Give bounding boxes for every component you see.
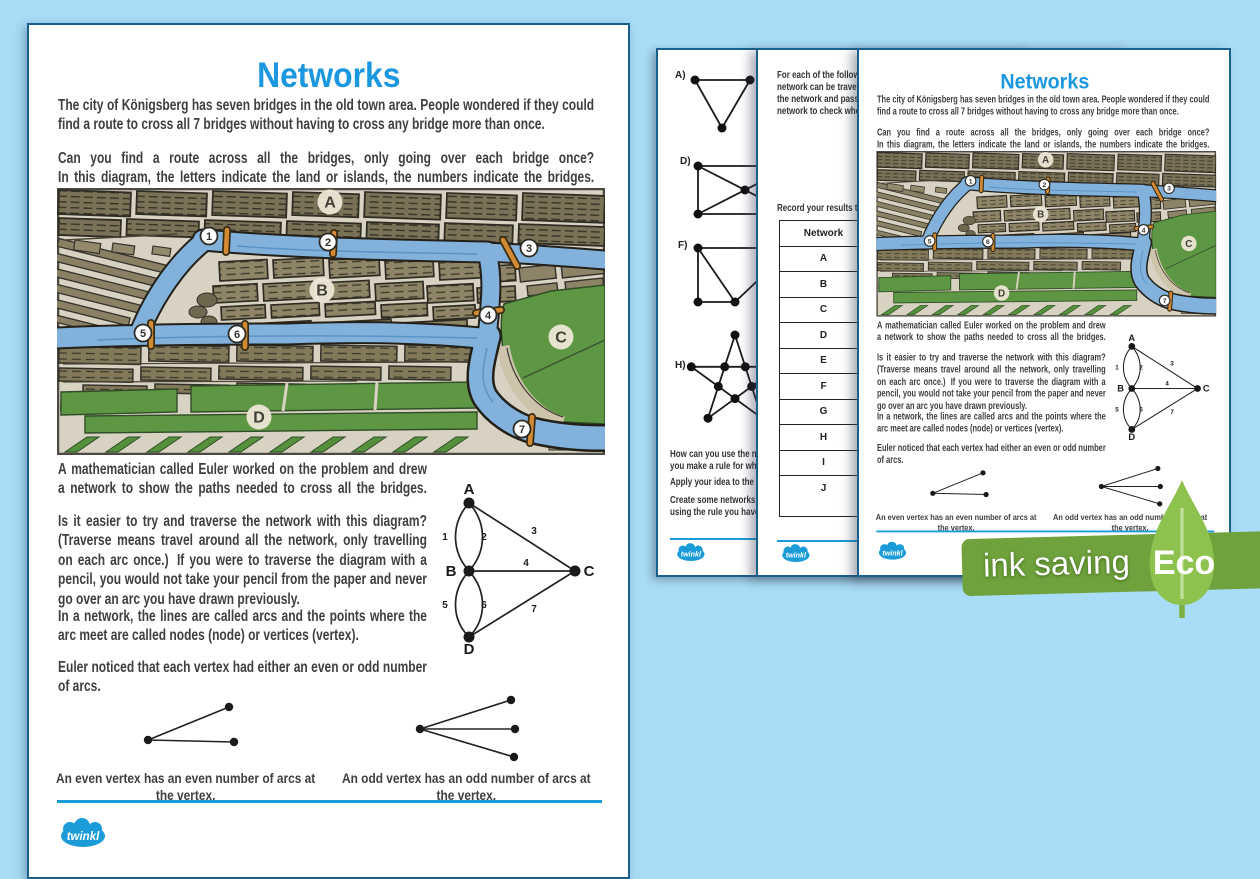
svg-text:B: B bbox=[1037, 210, 1044, 221]
svg-text:2: 2 bbox=[1042, 182, 1046, 189]
svg-text:B: B bbox=[1117, 384, 1124, 394]
svg-text:5: 5 bbox=[140, 328, 146, 340]
svg-text:B: B bbox=[446, 563, 457, 580]
svg-text:4: 4 bbox=[1142, 227, 1146, 234]
svg-text:C: C bbox=[584, 563, 595, 580]
svg-text:B: B bbox=[316, 283, 328, 300]
svg-text:3: 3 bbox=[1167, 186, 1171, 193]
svg-text:twinkl: twinkl bbox=[882, 549, 903, 557]
svg-text:7: 7 bbox=[1170, 409, 1174, 416]
svg-text:5: 5 bbox=[442, 600, 448, 611]
svg-text:D: D bbox=[1128, 432, 1135, 442]
svg-text:7: 7 bbox=[519, 424, 525, 436]
svg-text:5: 5 bbox=[928, 238, 932, 245]
svg-text:1: 1 bbox=[1115, 364, 1119, 371]
svg-text:A: A bbox=[1128, 333, 1135, 343]
svg-text:7: 7 bbox=[1163, 298, 1167, 305]
svg-text:twinkl: twinkl bbox=[786, 552, 807, 560]
svg-text:7: 7 bbox=[531, 604, 537, 615]
svg-text:A: A bbox=[464, 481, 475, 498]
svg-text:twinkl: twinkl bbox=[681, 551, 702, 559]
svg-text:A: A bbox=[1042, 155, 1049, 166]
svg-text:1: 1 bbox=[442, 532, 448, 543]
svg-text:twinkl: twinkl bbox=[67, 831, 100, 843]
svg-text:3: 3 bbox=[1170, 361, 1174, 368]
svg-text:1: 1 bbox=[969, 178, 973, 185]
svg-text:C: C bbox=[1185, 239, 1192, 250]
svg-text:4: 4 bbox=[523, 558, 529, 569]
svg-text:D: D bbox=[464, 641, 475, 658]
svg-text:1: 1 bbox=[206, 231, 212, 243]
svg-text:4: 4 bbox=[1165, 380, 1169, 387]
svg-text:6: 6 bbox=[481, 600, 487, 611]
svg-text:2: 2 bbox=[325, 237, 331, 249]
svg-text:3: 3 bbox=[526, 243, 532, 255]
svg-text:A: A bbox=[324, 195, 336, 212]
svg-text:D: D bbox=[253, 410, 265, 427]
svg-text:2: 2 bbox=[481, 532, 487, 543]
svg-text:D: D bbox=[998, 288, 1005, 299]
svg-text:6: 6 bbox=[234, 329, 240, 341]
svg-text:C: C bbox=[555, 330, 567, 347]
svg-text:4: 4 bbox=[485, 310, 492, 322]
svg-text:C: C bbox=[1203, 384, 1210, 394]
svg-text:6: 6 bbox=[1139, 406, 1143, 413]
svg-text:6: 6 bbox=[986, 239, 990, 246]
svg-text:2: 2 bbox=[1139, 364, 1143, 371]
svg-text:3: 3 bbox=[531, 526, 537, 537]
svg-text:5: 5 bbox=[1115, 406, 1119, 413]
